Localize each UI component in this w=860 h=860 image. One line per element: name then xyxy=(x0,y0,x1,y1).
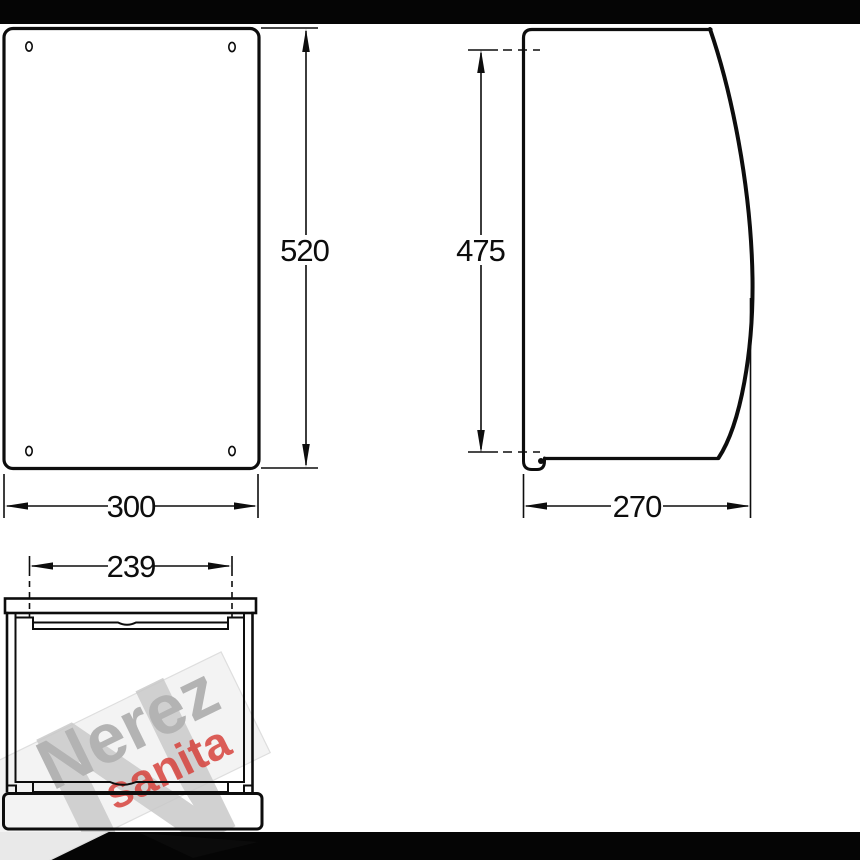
side-view-curved-cover xyxy=(710,29,753,458)
drawing-canvas: N Nerez sanita 520 300 xyxy=(0,0,860,860)
side-view-foot-curl xyxy=(538,458,544,464)
arrow-right-icon xyxy=(208,562,231,569)
arrow-left-icon xyxy=(5,502,28,509)
dimension-label-inner-width: 239 xyxy=(107,549,156,584)
arrow-up-icon xyxy=(477,50,485,73)
arrow-left-icon xyxy=(30,562,53,569)
mounting-hole-bottom-left xyxy=(26,446,32,455)
arrow-left-icon xyxy=(524,502,547,509)
dimension-label-depth: 270 xyxy=(613,489,662,524)
bottom-view-backplate xyxy=(5,599,256,614)
dimension-label-front-height: 520 xyxy=(280,233,329,268)
bottom-border-strip xyxy=(0,832,860,860)
arrow-right-icon xyxy=(234,502,257,509)
mounting-hole-top-left xyxy=(26,42,32,51)
mounting-hole-bottom-right xyxy=(229,446,235,455)
top-border-strip xyxy=(0,0,860,24)
arrow-right-icon xyxy=(727,502,750,509)
side-view-back-and-top xyxy=(524,30,712,453)
technical-drawing-svg: N Nerez sanita 520 300 xyxy=(0,0,860,860)
upper-tray-edge xyxy=(16,618,245,625)
front-view-outline xyxy=(4,29,259,469)
dimension-label-front-width: 300 xyxy=(107,489,156,524)
dimension-depth xyxy=(524,298,751,518)
arrow-up-icon xyxy=(302,29,310,52)
watermark: N Nerez sanita xyxy=(0,613,295,860)
arrow-down-icon xyxy=(477,430,485,453)
mounting-hole-top-right xyxy=(229,42,235,51)
side-view xyxy=(524,29,753,470)
front-view xyxy=(4,29,259,469)
dimension-label-hole-pitch: 475 xyxy=(456,233,505,268)
arrow-down-icon xyxy=(302,444,310,467)
